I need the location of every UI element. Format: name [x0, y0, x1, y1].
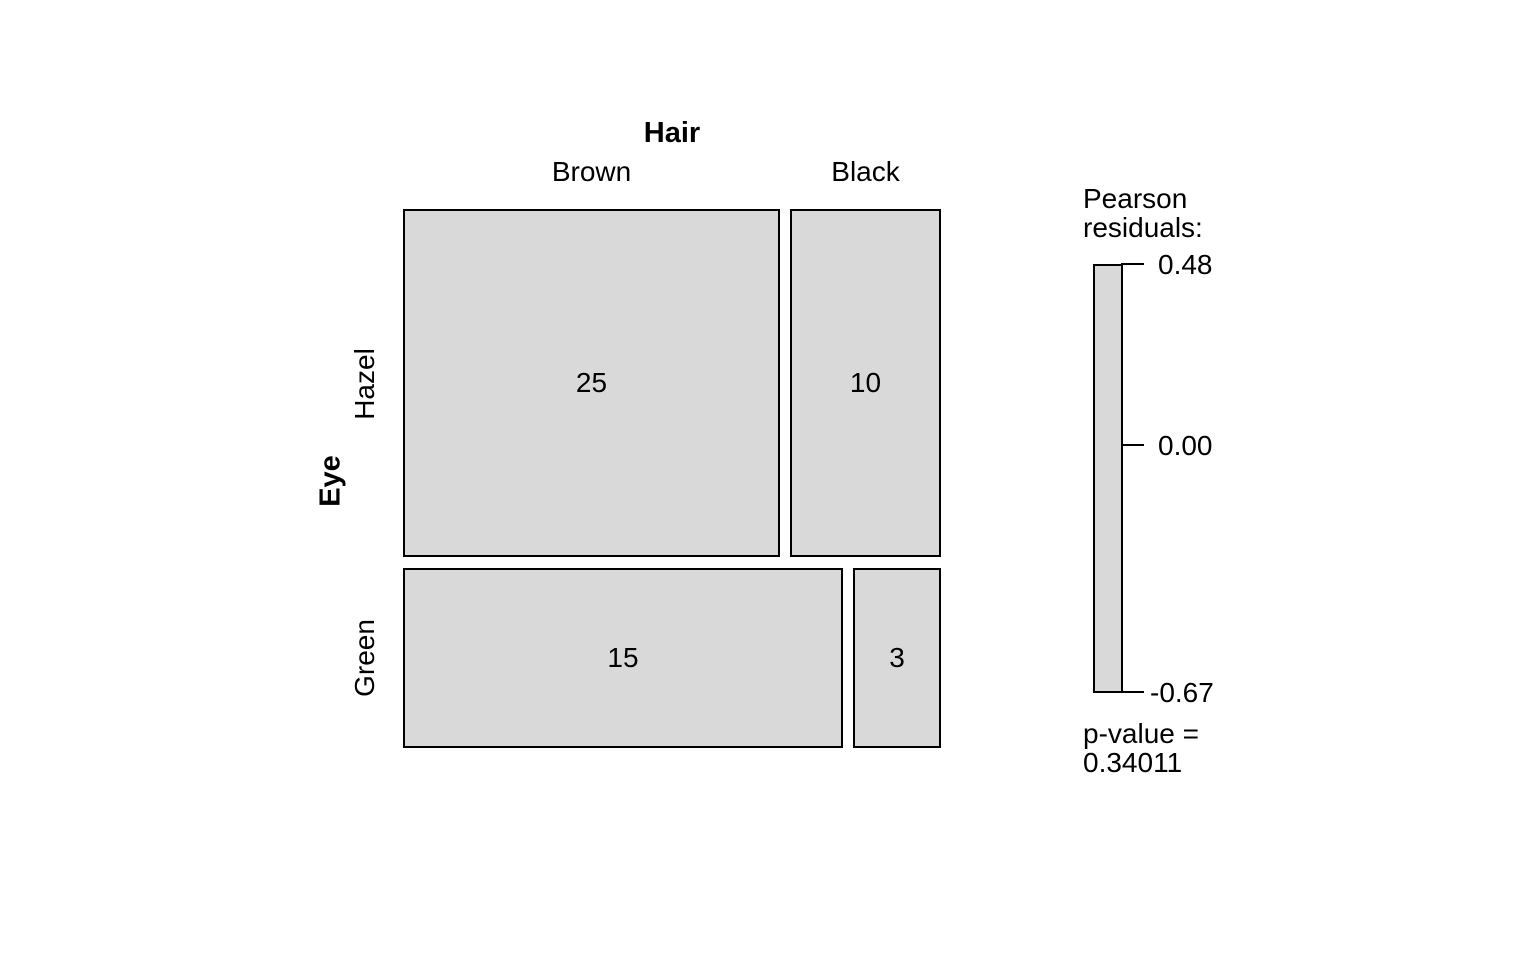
mosaic-cell-green-black: 3 [853, 568, 941, 748]
legend-title-line2: residuals: [1083, 213, 1203, 242]
p-value-line1: p-value = [1083, 719, 1199, 748]
colorbar-tick-top [1121, 263, 1144, 265]
y-axis-title: Eye [315, 455, 348, 507]
colorbar-tick-middle [1121, 444, 1144, 446]
col-label-black: Black [790, 156, 941, 188]
p-value-line2: 0.34011 [1083, 748, 1199, 777]
residuals-colorbar [1093, 264, 1123, 693]
cell-count-hazel-brown: 25 [576, 367, 607, 399]
cell-count-hazel-black: 10 [850, 367, 881, 399]
row-label-hazel: Hazel [349, 348, 381, 420]
p-value-text: p-value = 0.34011 [1083, 719, 1199, 777]
legend-title: Pearson residuals: [1083, 184, 1203, 242]
mosaic-plot-figure: Hair Brown Black Eye Hazel Green 25 10 1… [0, 0, 1536, 960]
cell-count-green-black: 3 [889, 642, 905, 674]
x-axis-title: Hair [403, 117, 941, 150]
col-label-brown: Brown [403, 156, 780, 188]
mosaic-cell-hazel-brown: 25 [403, 209, 780, 557]
mosaic-cell-green-brown: 15 [403, 568, 843, 748]
colorbar-label-min: -0.67 [1150, 678, 1214, 708]
mosaic-cell-hazel-black: 10 [790, 209, 941, 557]
row-label-green: Green [349, 619, 381, 697]
cell-count-green-brown: 15 [607, 642, 638, 674]
legend-title-line1: Pearson [1083, 184, 1203, 213]
colorbar-label-zero: 0.00 [1158, 431, 1213, 461]
colorbar-label-max: 0.48 [1158, 250, 1213, 280]
colorbar-tick-bottom [1121, 691, 1144, 693]
